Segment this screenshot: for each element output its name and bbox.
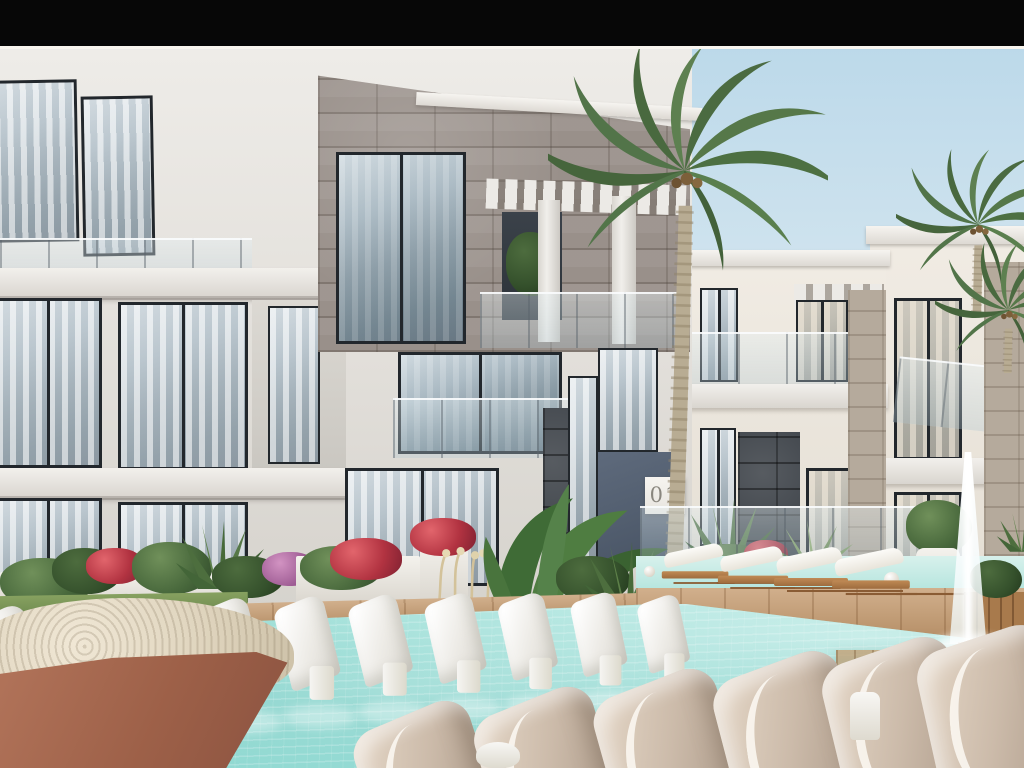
deck-ball-lamp-small [644, 566, 655, 577]
red-flowers [330, 538, 402, 580]
deck-wood-lounger [832, 551, 912, 595]
in-pool-lounger [289, 595, 349, 706]
stone-block-window [336, 152, 466, 344]
in-pool-lounger [581, 591, 635, 690]
palm-tree-right-small [935, 240, 1024, 373]
side-table-stool [476, 742, 520, 768]
letterbox-top-bar [0, 0, 1024, 46]
left-floor-slab-2 [0, 468, 346, 498]
in-pool-lounger [510, 592, 566, 695]
letterbox-divider-line [0, 46, 1024, 49]
left-floor-slab-1 [0, 268, 346, 298]
center-mid-railing [393, 398, 568, 458]
left-mid-window-b [118, 302, 248, 470]
left-top-window-b [81, 95, 156, 256]
in-pool-lounger [437, 592, 495, 698]
in-pool-lounger [363, 593, 422, 702]
water-reflection [283, 705, 356, 728]
left-mid-recess-window [268, 306, 320, 464]
left-top-window-a [0, 79, 79, 242]
resort-render-scene: 01 [0, 0, 1024, 768]
side-table-stool [850, 692, 880, 740]
left-mid-window-a [0, 298, 102, 468]
